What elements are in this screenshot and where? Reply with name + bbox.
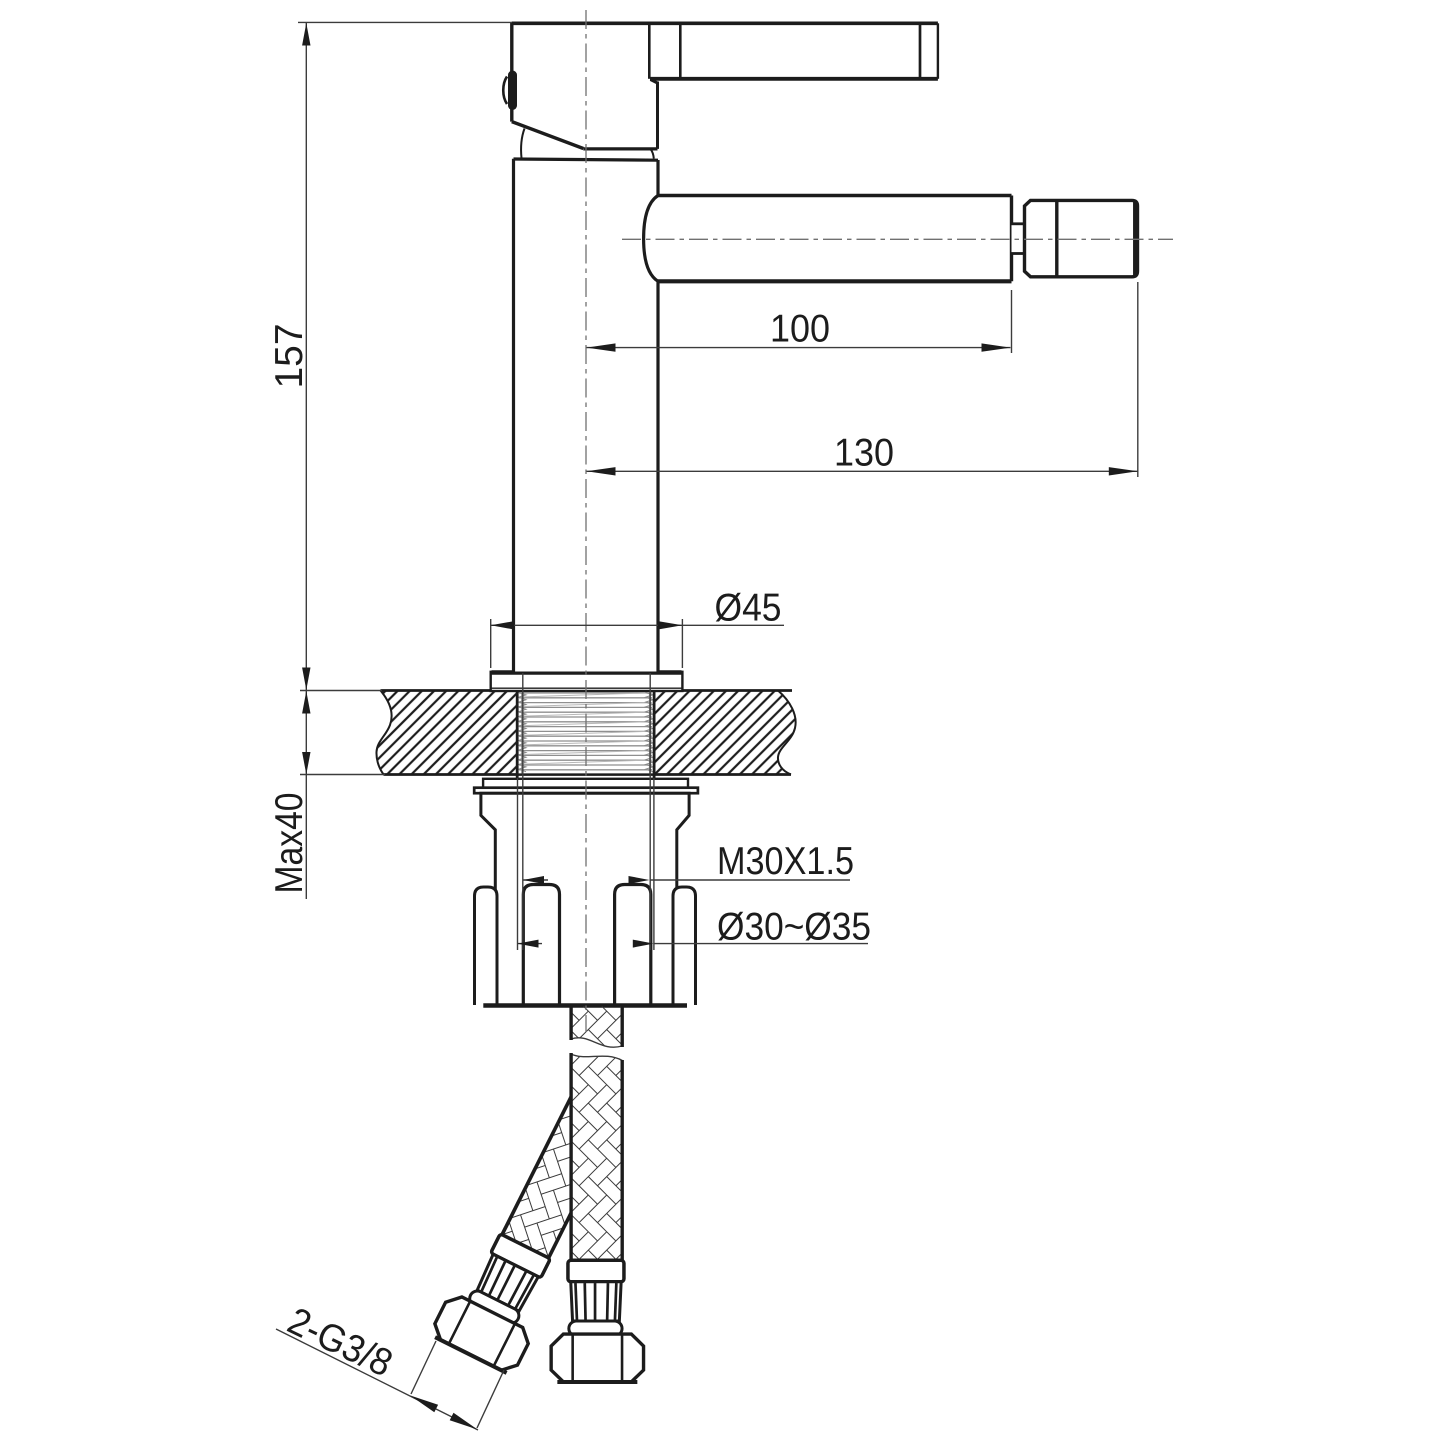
svg-text:Ø30~Ø35: Ø30~Ø35 [717,906,871,949]
svg-text:100: 100 [770,308,830,351]
svg-text:Ø45: Ø45 [715,587,782,630]
svg-text:157: 157 [268,324,311,389]
svg-text:M30X1.5: M30X1.5 [717,840,854,883]
svg-text:130: 130 [834,431,894,474]
svg-text:Max40: Max40 [268,793,311,894]
